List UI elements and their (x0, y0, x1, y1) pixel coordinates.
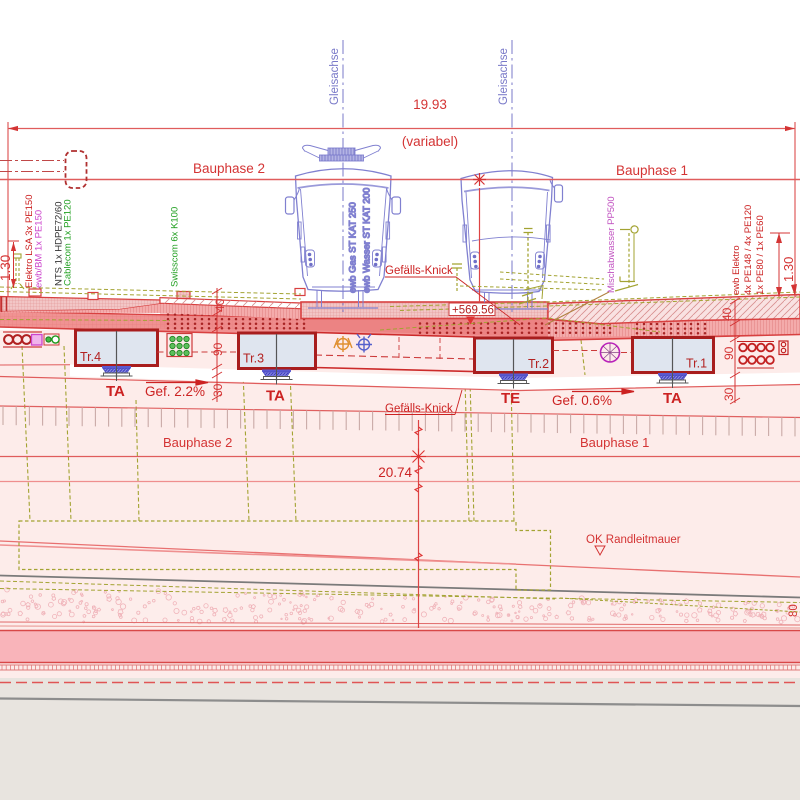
svg-text:Bauphase 1: Bauphase 1 (580, 435, 649, 450)
svg-text:Gleisachse: Gleisachse (329, 48, 341, 105)
svg-text:80: 80 (788, 604, 800, 617)
svg-text:Gleisachse: Gleisachse (498, 48, 510, 105)
svg-text:Gefälls-Knick: Gefälls-Knick (385, 403, 453, 415)
svg-text:ewb Elektro: ewb Elektro (731, 245, 742, 295)
svg-text:TA: TA (663, 390, 682, 407)
svg-text:Tr.4: Tr.4 (80, 350, 101, 364)
svg-text:Tr.1: Tr.1 (686, 357, 707, 371)
svg-text:Gef. 0.6%: Gef. 0.6% (552, 393, 612, 408)
svg-text:(variabel): (variabel) (402, 134, 458, 149)
svg-text:OK Randleitmauer: OK Randleitmauer (586, 534, 681, 546)
svg-text:Bauphase 2: Bauphase 2 (193, 161, 265, 176)
svg-text:Gefälls-Knick: Gefälls-Knick (385, 265, 453, 277)
svg-text:Bauphase 2: Bauphase 2 (163, 435, 232, 450)
svg-text:ewb Gas ST KAT 250: ewb Gas ST KAT 250 (348, 202, 359, 293)
svg-text:TE: TE (501, 390, 520, 407)
svg-text:1x PE80 / 1x PE60: 1x PE80 / 1x PE60 (755, 215, 766, 295)
svg-text:ewb Wasser ST KAT 200: ewb Wasser ST KAT 200 (362, 188, 373, 293)
svg-text:40: 40 (213, 298, 227, 312)
svg-text:TA: TA (106, 383, 125, 400)
svg-text:Cablecom 1x PE120: Cablecom 1x PE120 (63, 199, 74, 286)
svg-text:Bauphase 1: Bauphase 1 (616, 163, 688, 178)
svg-text:1.30: 1.30 (0, 255, 13, 281)
svg-text:30: 30 (722, 387, 736, 401)
svg-text:Gef. 2.2%: Gef. 2.2% (145, 384, 205, 399)
svg-text:90: 90 (722, 346, 736, 360)
svg-text:Swisscom 6x K100: Swisscom 6x K100 (170, 207, 181, 287)
svg-text:TA: TA (266, 388, 285, 405)
svg-text:Tr.2: Tr.2 (528, 357, 549, 371)
svg-text:Mischabwasser PP500: Mischabwasser PP500 (606, 196, 617, 293)
svg-text:1.30: 1.30 (781, 257, 796, 282)
svg-text:30: 30 (211, 383, 225, 397)
svg-text:40: 40 (720, 307, 734, 321)
svg-text:20.74: 20.74 (378, 465, 412, 480)
svg-text:90: 90 (211, 342, 225, 356)
svg-text:+569.56: +569.56 (452, 305, 494, 317)
svg-text:4x PE148 / 4x PE120: 4x PE148 / 4x PE120 (743, 205, 754, 295)
svg-text:ewb/BM 1x PE150: ewb/BM 1x PE150 (34, 210, 45, 288)
svg-text:Tr.3: Tr.3 (243, 352, 264, 366)
svg-text:19.93: 19.93 (413, 97, 447, 112)
